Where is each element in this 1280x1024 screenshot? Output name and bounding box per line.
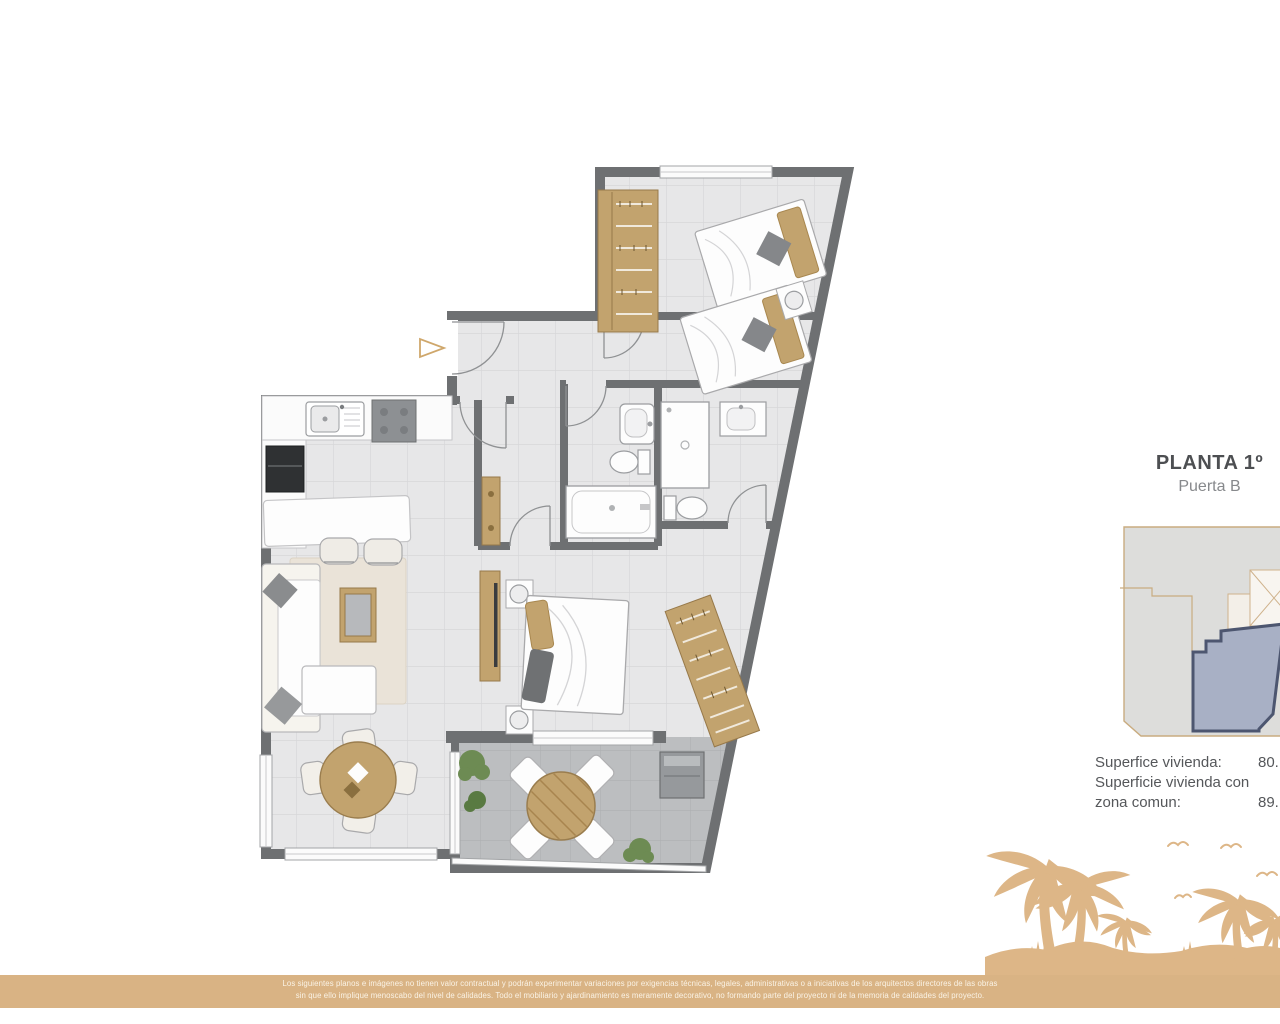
stair-core bbox=[1250, 570, 1280, 626]
kitchen-oven bbox=[266, 446, 304, 492]
master-bed bbox=[519, 595, 629, 714]
building-locator-minimap bbox=[1117, 520, 1280, 740]
hall-console bbox=[482, 477, 500, 545]
bathroom2-shower bbox=[661, 402, 709, 488]
surface-info: Superfice vivienda: 80. Superficie vivie… bbox=[1095, 753, 1280, 813]
wardrobe-twin bbox=[598, 190, 658, 332]
terrace-ac-unit bbox=[660, 752, 704, 798]
bathroom1-toilet bbox=[610, 450, 650, 474]
bathroom1-sink bbox=[620, 404, 654, 444]
surface-label-2b: zona comun: bbox=[1095, 793, 1181, 813]
surface-label-1: Superfice vivienda: bbox=[1095, 753, 1222, 773]
palm-art-shapes bbox=[985, 851, 1280, 975]
surface-value-2: 89. bbox=[1258, 793, 1280, 813]
plan-title-block: PLANTA 1º Puerta B bbox=[1127, 452, 1280, 496]
surface-value-1: 80. bbox=[1258, 753, 1280, 773]
floor-plan bbox=[250, 160, 890, 890]
bathroom1-bathtub bbox=[566, 486, 656, 538]
bathroom2-toilet bbox=[664, 496, 707, 520]
coffee-table bbox=[340, 588, 376, 642]
bathroom2-sink bbox=[720, 402, 766, 436]
bottom-margin bbox=[0, 1008, 1280, 1024]
entrance-direction-marker-icon bbox=[420, 339, 444, 357]
disclaimer-line-1: Los siguientes planos e imágenes no tien… bbox=[280, 978, 1000, 990]
page-title: PLANTA 1º bbox=[1127, 452, 1280, 475]
palm-beach-silhouette-art bbox=[985, 818, 1280, 975]
legal-disclaimer: Los siguientes planos e imágenes no tien… bbox=[0, 978, 1280, 1002]
tv-console-master bbox=[480, 571, 500, 681]
highlighted-unit bbox=[1193, 624, 1280, 731]
bird-icons bbox=[1168, 842, 1277, 898]
kitchen-hob bbox=[372, 400, 416, 442]
surface-label-2a: Superficie vivienda con bbox=[1095, 773, 1249, 793]
disclaimer-line-2: sin que ello implique menoscabo del nive… bbox=[280, 990, 1000, 1002]
page-subtitle: Puerta B bbox=[1127, 478, 1280, 496]
kitchen-sink bbox=[306, 402, 364, 436]
